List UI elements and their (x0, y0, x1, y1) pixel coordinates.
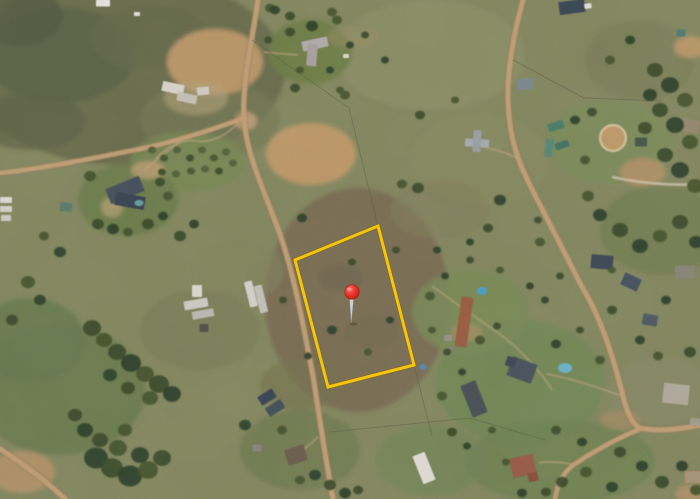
imagery-mottle (0, 0, 700, 499)
satellite-map[interactable] (0, 0, 700, 499)
pin-head (345, 285, 359, 299)
pin-shadow (350, 322, 358, 325)
pin-highlight (347, 288, 351, 291)
satellite-map-view[interactable] (0, 0, 700, 499)
